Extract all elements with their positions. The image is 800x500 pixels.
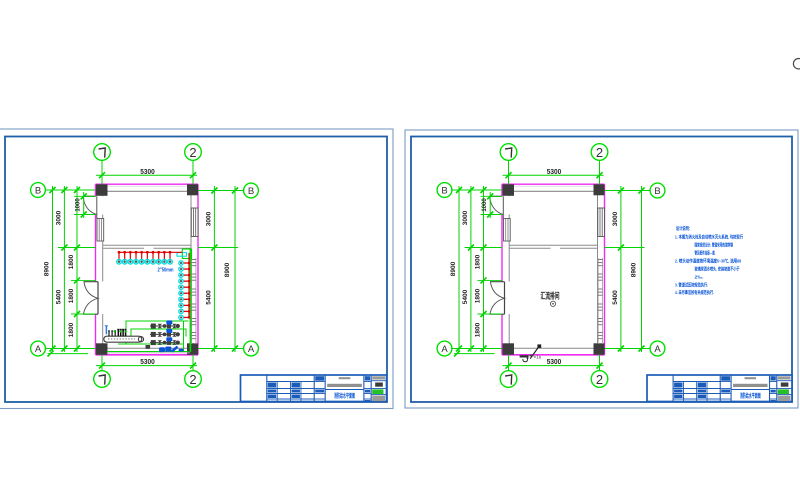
svg-text:A: A [441,344,448,355]
svg-text:4. 未尽事宜按有关规范执行.: 4. 未尽事宜按有关规范执行. [675,289,714,296]
svg-text:5300: 5300 [140,167,155,176]
svg-text:2‰.: 2‰. [695,275,704,281]
svg-text:5300: 5300 [140,357,155,366]
svg-text:5400: 5400 [462,289,469,304]
svg-text:A: A [654,344,661,355]
svg-text:B: B [441,185,447,196]
svg-text:5300: 5300 [547,167,562,176]
svg-text:管及配件连接—套.: 管及配件连接—套. [695,250,716,257]
svg-text:1000: 1000 [482,198,488,212]
svg-text:B: B [35,185,41,196]
svg-text:×1s: ×1s [534,355,542,360]
svg-text:3000: 3000 [55,210,62,225]
svg-text:5400: 5400 [55,289,62,304]
svg-text:汇流排间: 汇流排间 [541,291,560,301]
svg-text:2: 2 [596,145,603,160]
svg-text:5400: 5400 [612,290,619,305]
svg-text:1800: 1800 [475,254,482,269]
svg-text:A: A [35,344,42,355]
svg-text:5300: 5300 [547,357,562,366]
svg-text:设计说明：: 设计说明： [676,225,692,232]
svg-text:2. 喷头动作温度按环境温度5~30℃, 选用68: 2. 喷头动作温度按环境温度5~30℃, 选用68 [675,258,741,265]
svg-text:1800: 1800 [475,288,482,303]
svg-text:2: 2 [189,372,196,387]
svg-text:8900: 8900 [631,262,638,277]
svg-text:3. 管道试压按规范执行.: 3. 管道试压按规范执行. [675,282,708,289]
svg-text:B: B [248,186,254,197]
svg-text:1800: 1800 [68,322,75,337]
svg-text:3000: 3000 [462,210,469,225]
svg-text:3000: 3000 [205,211,212,226]
svg-text:1000: 1000 [76,198,82,212]
svg-text:5400: 5400 [205,290,212,305]
svg-text:B: B [654,186,660,197]
svg-text:1800: 1800 [475,322,482,337]
svg-text:消防给水平面图: 消防给水平面图 [334,392,355,400]
svg-text:3000: 3000 [612,211,619,226]
svg-text:1. 本图为消火栓及自动喷水灭火系统, 均按现行: 1. 本图为消火栓及自动喷水灭火系统, 均按现行 [675,234,743,241]
svg-text:2: 2 [596,372,603,387]
svg-text:消防给水平面图: 消防给水平面图 [740,392,761,400]
svg-text:2: 2 [189,145,196,160]
svg-text:8900: 8900 [44,261,51,276]
svg-text:8900: 8900 [224,262,231,277]
svg-text:8900: 8900 [450,261,457,276]
svg-text:国家规范设计, 管道采用热镀锌钢: 国家规范设计, 管道采用热镀锌钢 [695,242,734,249]
svg-text:1800: 1800 [68,254,75,269]
svg-text:A: A [248,344,255,355]
svg-text:2″50mm: 2″50mm [158,268,174,274]
svg-text:玻璃球洒水喷头, 安装坡度不小于: 玻璃球洒水喷头, 安装坡度不小于 [695,266,740,273]
svg-text:1800: 1800 [68,288,75,303]
